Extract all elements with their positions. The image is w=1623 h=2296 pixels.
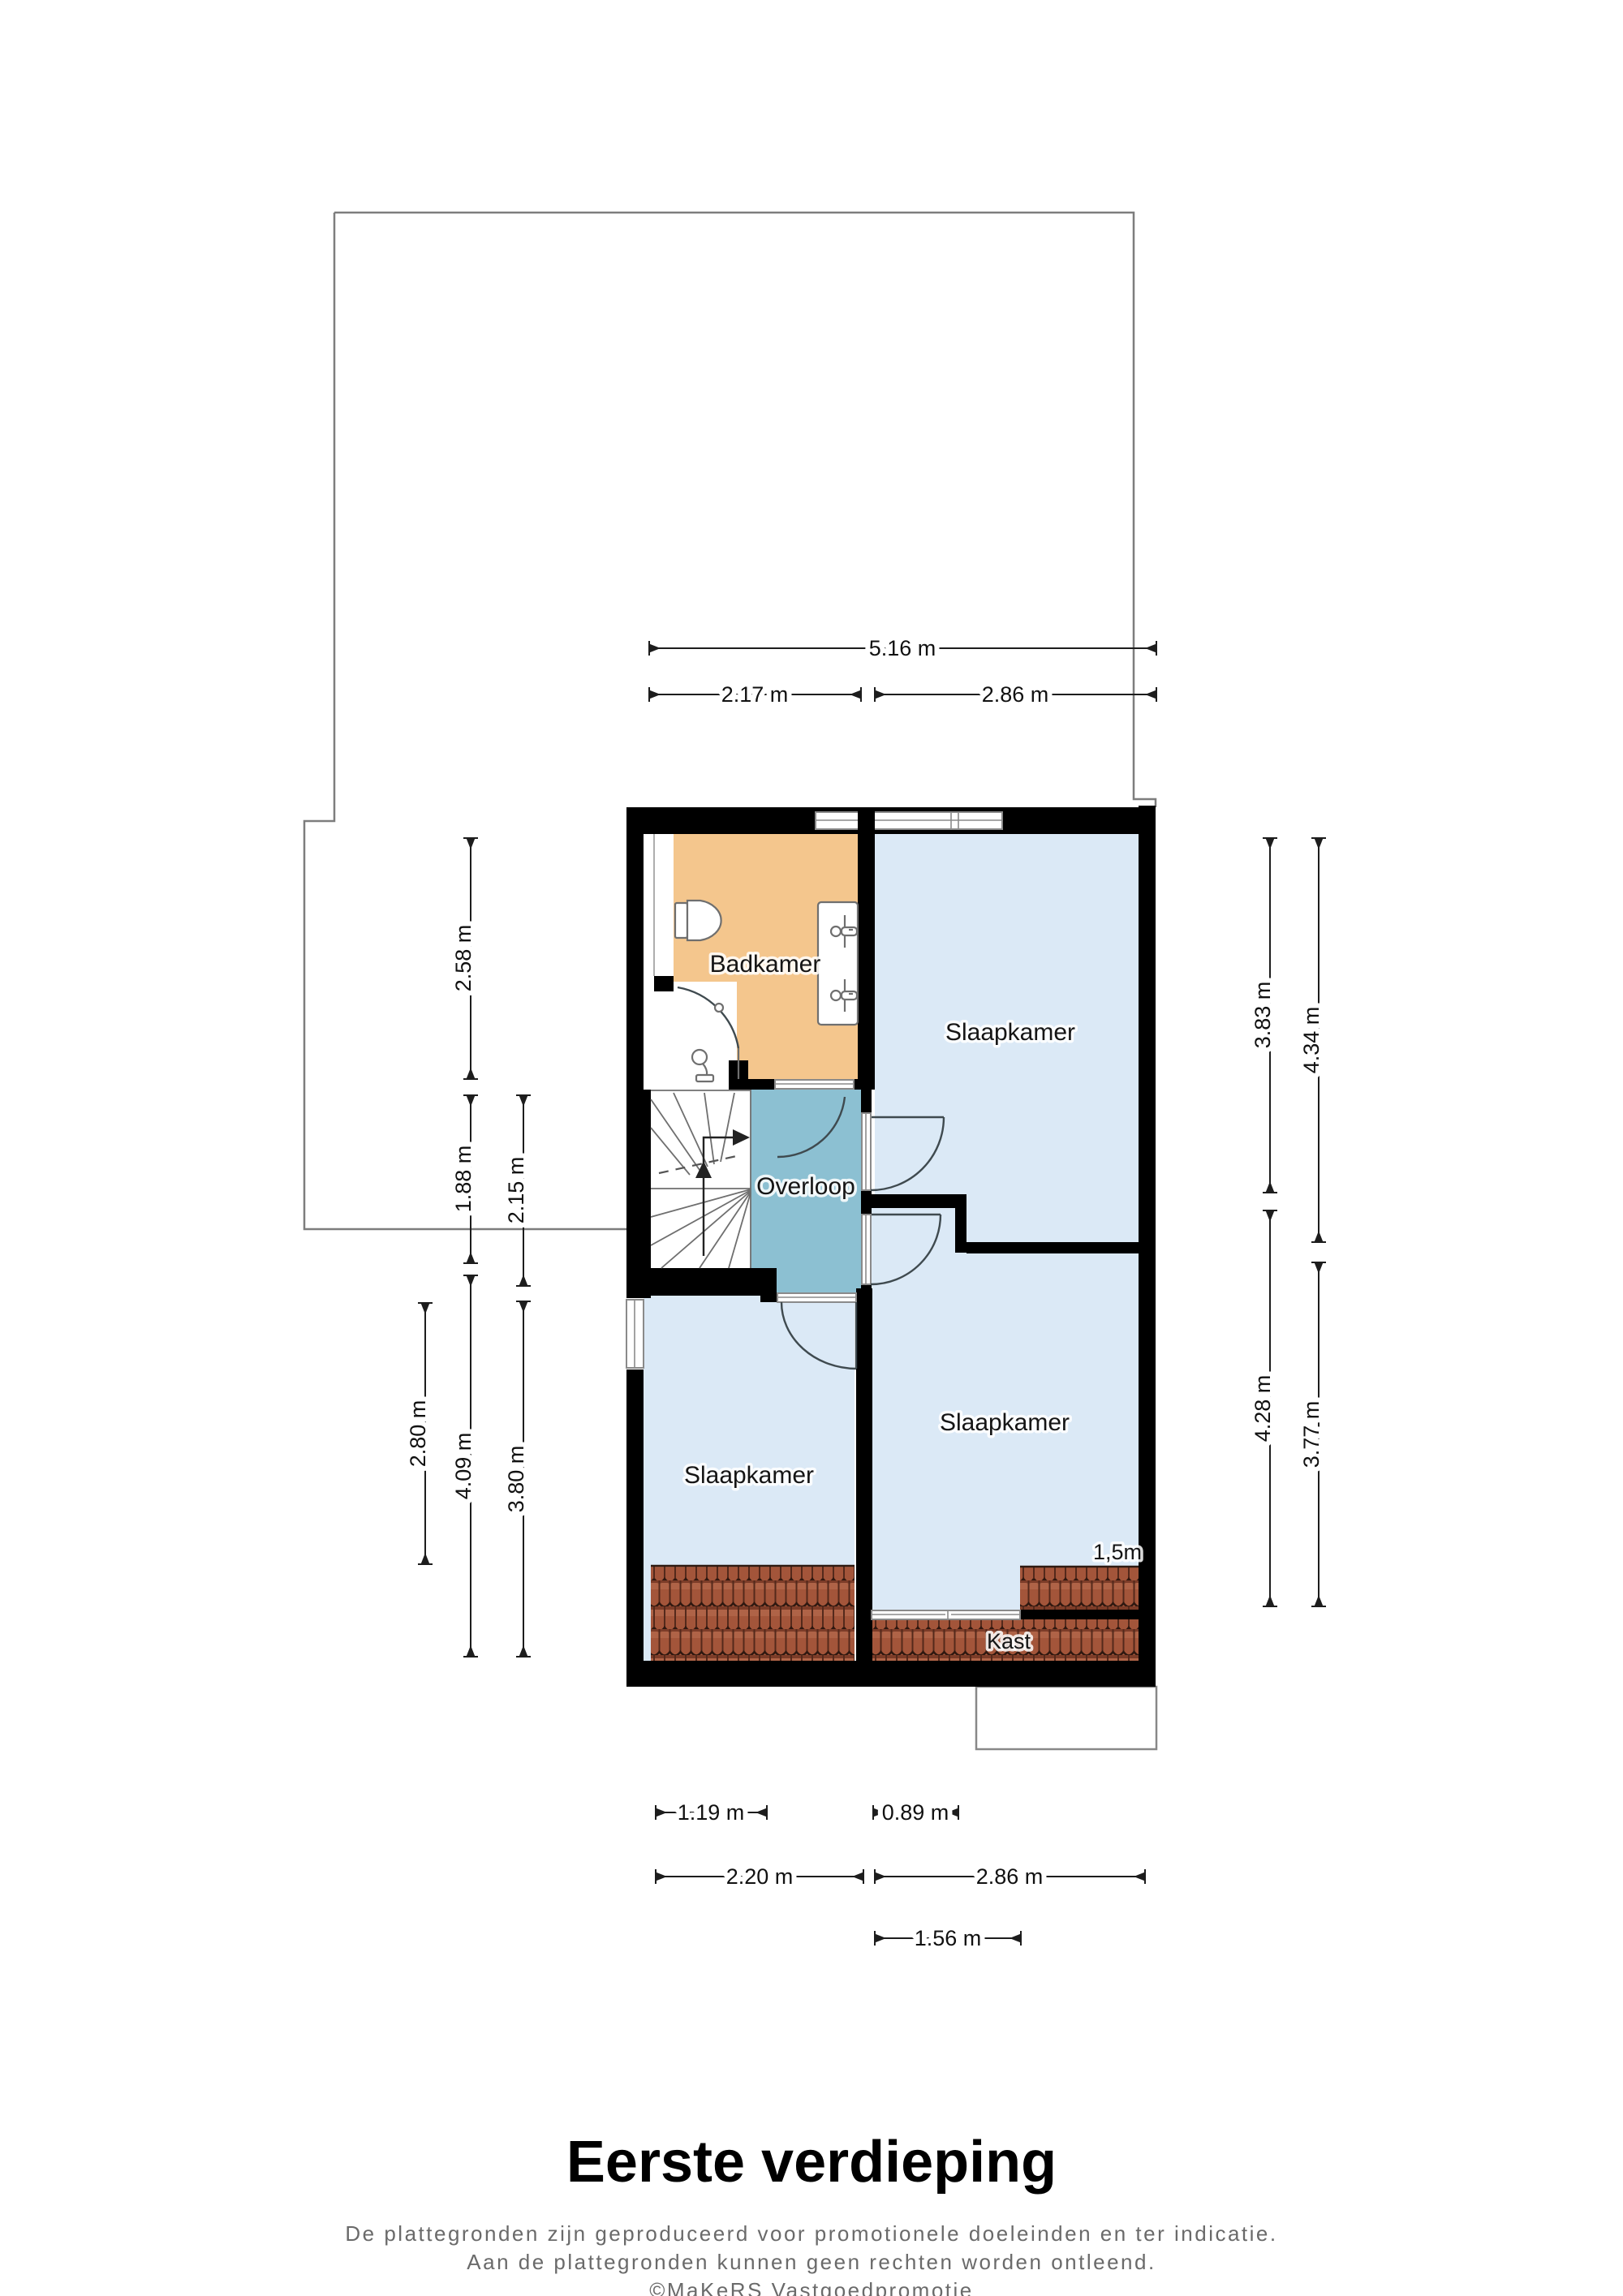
dimension-right-bedroom-bottom-inner: 4.28 m <box>1251 1210 1277 1606</box>
shower-floor <box>643 982 737 1090</box>
left-window <box>626 1300 644 1368</box>
room-label-slaapkamer-rechts: Slaapkamer <box>940 1409 1070 1436</box>
dimension-top-right-section: 2.86 m <box>875 682 1156 707</box>
dimension-bottom-stairwell: 1.19 m <box>656 1800 767 1825</box>
svg-text:1.88 m: 1.88 m <box>451 1146 476 1213</box>
svg-text:2.58 m: 2.58 m <box>451 925 476 992</box>
svg-text:4.09 m: 4.09 m <box>451 1433 476 1500</box>
dimension-right-bedroom-bottom-outer: 3.77 m <box>1299 1262 1326 1606</box>
dimension-bottom-step: 0.89 m <box>873 1800 958 1825</box>
dimension-bottom-kast-door: 1.56 m <box>875 1926 1021 1950</box>
dimension-left-stairhall: 1.88 m <box>451 1095 478 1263</box>
room-label-slaapkamer-boven: Slaapkamer <box>945 1019 1075 1046</box>
svg-text:3.83 m: 3.83 m <box>1251 982 1275 1049</box>
rear-extension-outline <box>976 1687 1156 1749</box>
height-line-label: 1,5m <box>1093 1540 1142 1564</box>
double-washbasin-icon <box>818 902 858 1025</box>
svg-text:2.86 m: 2.86 m <box>976 1864 1044 1889</box>
dimension-top-width-total: 5.16 m <box>649 636 1156 660</box>
dimension-left-bedroom-outer: 4.09 m <box>451 1275 478 1657</box>
dimension-left-badkamer: 2.58 m <box>451 838 478 1079</box>
room-label-overloop: Overloop <box>756 1173 855 1200</box>
room-label-kast: Kast <box>987 1629 1031 1653</box>
svg-text:2.20 m: 2.20 m <box>726 1864 794 1889</box>
svg-text:1.56 m: 1.56 m <box>915 1926 982 1950</box>
roof-tile-strip-right <box>1020 1567 1139 1610</box>
svg-text:3.77 m: 3.77 m <box>1299 1401 1324 1468</box>
room-label-slaapkamer-links: Slaapkamer <box>684 1462 814 1489</box>
svg-text:2.15 m: 2.15 m <box>504 1157 528 1224</box>
floorplan-drawing: Badkamer Slaapkamer Overloop Slaapkamer … <box>0 0 1623 2296</box>
disclaimer-line-3: ©MaKeRS Vastgoedpromotie <box>0 2277 1623 2296</box>
dimension-left-bedroom-inner: 3.80 m <box>504 1301 531 1657</box>
dimension-left-stairhall-inner: 2.15 m <box>504 1095 531 1286</box>
floorplan-page: Badkamer Slaapkamer Overloop Slaapkamer … <box>0 0 1623 2296</box>
svg-text:3.80 m: 3.80 m <box>504 1446 528 1513</box>
svg-text:2.80 m: 2.80 m <box>406 1400 430 1468</box>
svg-text:0.89 m: 0.89 m <box>882 1800 949 1825</box>
disclaimer: De plattegronden zijn geproduceerd voor … <box>0 2220 1623 2296</box>
dimension-bottom-left-room: 2.20 m <box>656 1864 863 1889</box>
svg-text:2.86 m: 2.86 m <box>982 682 1049 707</box>
kast-sliding-door <box>872 1610 1020 1619</box>
toilet-icon <box>675 901 721 940</box>
svg-text:4.28 m: 4.28 m <box>1251 1375 1275 1443</box>
floor-title: Eerste verdieping <box>0 2129 1623 2195</box>
stairwell-floor <box>651 1090 751 1268</box>
dimension-top-left-section: 2.17 m <box>649 682 861 707</box>
svg-text:1.19 m: 1.19 m <box>678 1800 745 1825</box>
svg-text:4.34 m: 4.34 m <box>1299 1007 1324 1074</box>
dimension-left-bedroom-headroom: 2.80 m <box>406 1303 433 1564</box>
disclaimer-line-2: Aan de plattegronden kunnen geen rechten… <box>0 2248 1623 2277</box>
svg-text:2.17 m: 2.17 m <box>721 682 789 707</box>
room-label-badkamer: Badkamer <box>710 951 821 978</box>
dimension-right-bedroom-top-inner: 3.83 m <box>1251 838 1277 1193</box>
dimension-right-bedroom-top-outer: 4.34 m <box>1299 838 1326 1242</box>
roof-tile-strip-left <box>651 1566 855 1661</box>
disclaimer-line-1: De plattegronden zijn geproduceerd voor … <box>0 2220 1623 2248</box>
dimension-bottom-right-room: 2.86 m <box>875 1864 1145 1889</box>
svg-text:5.16 m: 5.16 m <box>869 636 936 660</box>
